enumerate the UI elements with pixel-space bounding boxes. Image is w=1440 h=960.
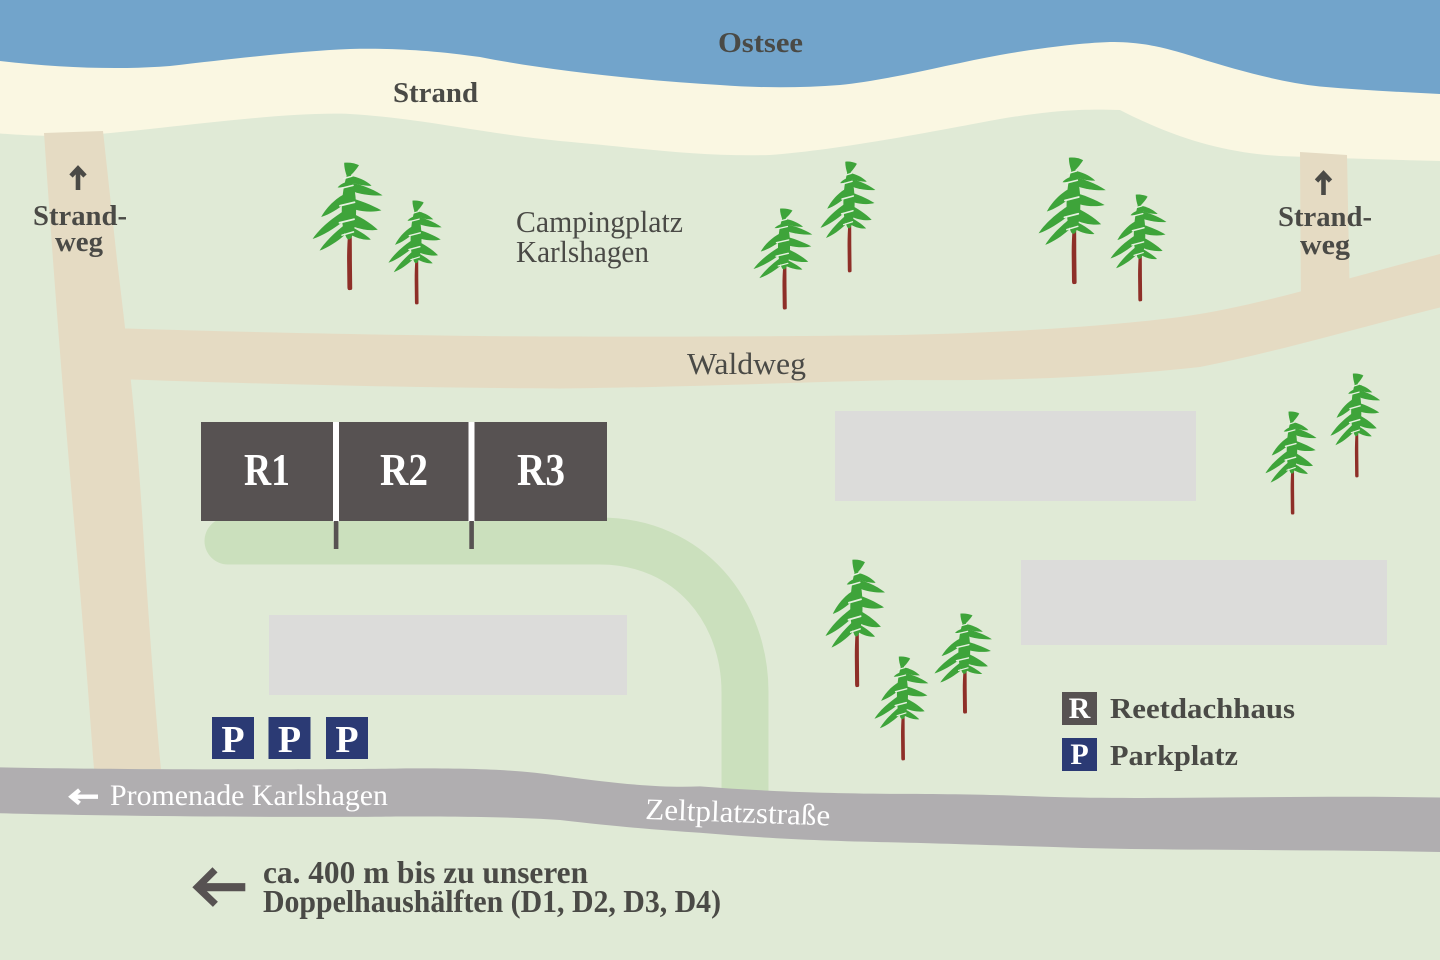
svg-text:Karlshagen: Karlshagen: [516, 234, 649, 269]
svg-text:R3: R3: [517, 445, 565, 495]
svg-text:Doppelhaushälften (D1, D2, D3,: Doppelhaushälften (D1, D2, D3, D4): [263, 883, 721, 919]
svg-text:Waldweg: Waldweg: [687, 346, 806, 381]
svg-text:Parkplatz: Parkplatz: [1110, 740, 1238, 772]
svg-text:weg: weg: [55, 226, 103, 258]
svg-text:R2: R2: [380, 445, 428, 495]
svg-text:weg: weg: [1300, 229, 1351, 261]
svg-text:R: R: [1069, 692, 1091, 725]
svg-text:Reetdachhaus: Reetdachhaus: [1110, 693, 1295, 725]
svg-text:P: P: [335, 719, 358, 761]
svg-text:P: P: [1070, 738, 1088, 771]
svg-text:P: P: [278, 719, 301, 761]
svg-text:Promenade Karlshagen: Promenade Karlshagen: [110, 779, 388, 812]
svg-text:Zeltplatzstraße: Zeltplatzstraße: [645, 793, 831, 832]
svg-text:Strand: Strand: [393, 77, 478, 109]
svg-text:Ostsee: Ostsee: [718, 27, 803, 59]
svg-text:R1: R1: [244, 445, 290, 495]
svg-text:P: P: [221, 719, 244, 761]
